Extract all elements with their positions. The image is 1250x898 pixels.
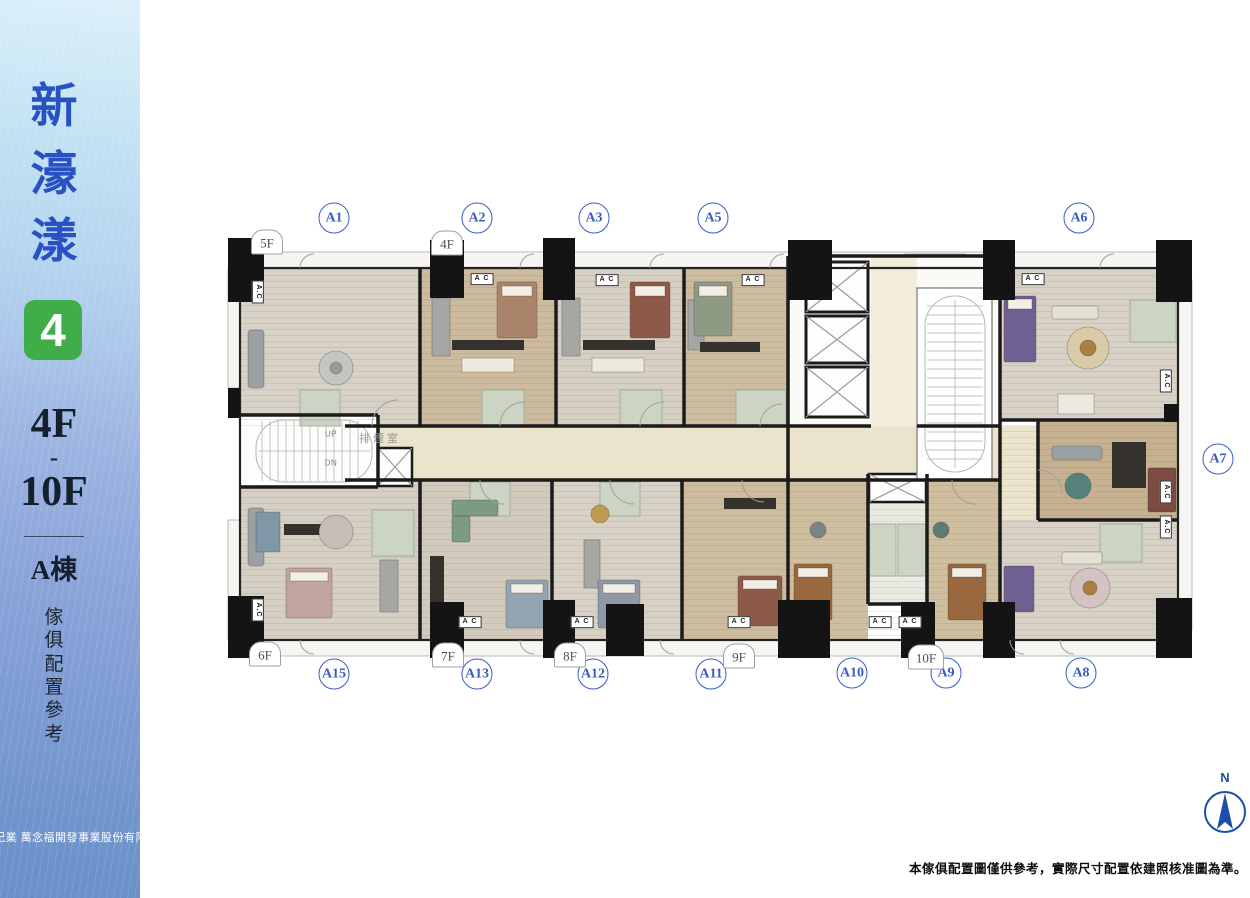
floor-plan-drawing bbox=[0, 0, 1250, 898]
compass-n-label: N bbox=[1203, 770, 1247, 785]
stair-dn-label: DN bbox=[325, 459, 338, 468]
stair-up-label: UP bbox=[325, 430, 337, 439]
page-root: 新 濠 漾 4 4F - 10F A棟 傢 俱 配 置 參 考 紀業 萬念福開發… bbox=[0, 0, 1250, 898]
compass-icon bbox=[1203, 786, 1247, 834]
floor-plan-area: A1A2A3A5A6A7A15A13A12A11A10A9A85F4F6F7F8… bbox=[0, 0, 1250, 898]
disclaimer-text: 本傢俱配置圖僅供參考，實際尺寸配置依建照核准圖為準。 bbox=[909, 858, 1247, 877]
compass: N bbox=[1203, 770, 1247, 839]
smoke-room-label: 排煙室 bbox=[359, 430, 401, 446]
